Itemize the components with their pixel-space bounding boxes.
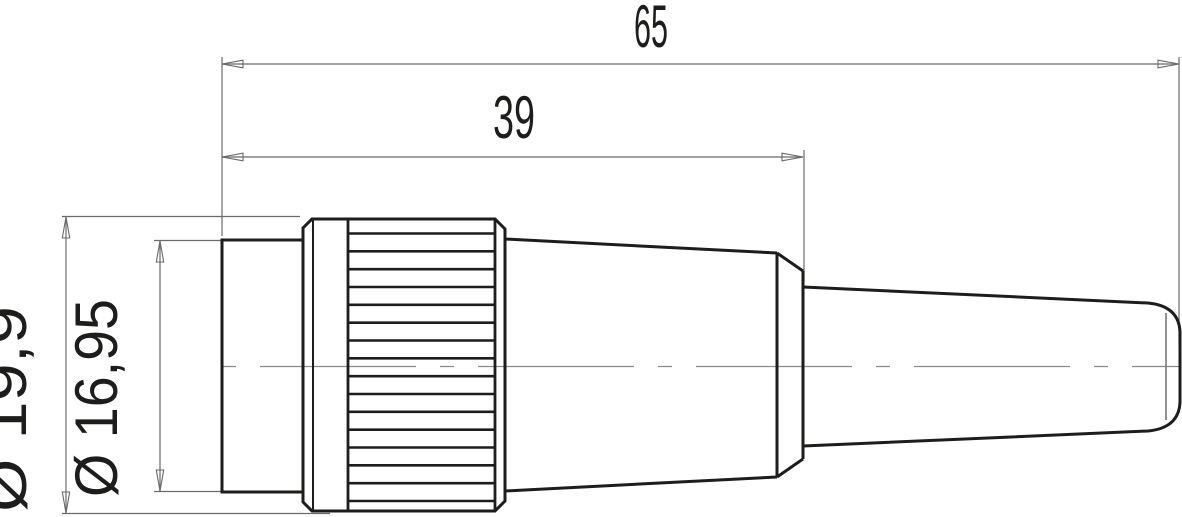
- dimension-overall-length: 65: [222, 0, 1179, 345]
- dimension-front-length: 39: [222, 84, 804, 282]
- cone-top-edge: [505, 239, 777, 253]
- dimension-value-39: 39: [493, 84, 535, 151]
- dimension-value-diameter-16-95: Ø 16,95: [63, 299, 130, 497]
- shoulder-chamfer-bottom: [777, 459, 803, 477]
- cable-boot: [505, 239, 1180, 491]
- connector-technical-drawing: 65 39 Ø 19,9 Ø 16,95: [0, 0, 1182, 517]
- cone-bottom-edge: [505, 477, 777, 491]
- main-body-outline: [303, 219, 505, 511]
- connector-main-body: [303, 219, 505, 511]
- grip-ribs: [348, 234, 495, 502]
- dimension-value-65: 65: [634, 0, 668, 60]
- shoulder-chamfer-top: [777, 253, 803, 271]
- dimension-mating-diameter: Ø 16,95: [63, 241, 221, 498]
- drawing-canvas: 65 39 Ø 19,9 Ø 16,95: [0, 0, 1182, 517]
- dimension-body-diameter: Ø 19,9: [0, 217, 330, 514]
- dimension-value-diameter-19-9: Ø 19,9: [0, 306, 39, 512]
